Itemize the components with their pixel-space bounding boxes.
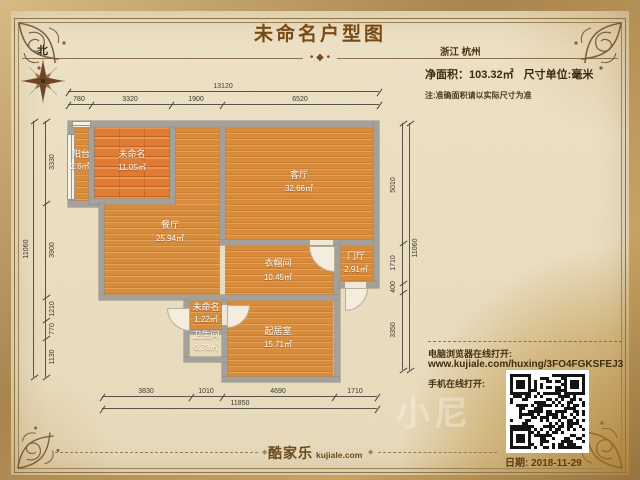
room-label: 卫生间: [192, 331, 219, 340]
wall-segment: [184, 357, 227, 362]
compass-rose-icon: [20, 58, 66, 104]
dimension-label: 3830: [129, 388, 163, 395]
dimension-label: 1130: [49, 340, 57, 374]
region-label: 浙江 杭州: [440, 44, 481, 58]
room-area: 11.05㎡: [118, 164, 145, 172]
dimension-label: 13120: [206, 83, 240, 90]
door-opening: [310, 240, 333, 245]
unit-label: 尺寸单位:毫米: [524, 69, 594, 81]
dimension-label: 5010: [390, 168, 398, 202]
title-ornament-icon: • ◆ •: [303, 52, 337, 63]
room-label: 餐厅: [161, 221, 179, 230]
dimension-label: 3900: [49, 233, 57, 267]
share-url: www.kujiale.com/huxing/3FO4FGKSFEJ3: [428, 359, 623, 370]
brand-watermark: 小尼: [396, 386, 472, 435]
room-dining: [104, 204, 220, 295]
date-label: 日期: 2018-11-29: [505, 454, 582, 469]
room-area: 15.71㎡: [264, 341, 292, 349]
room-area: 10.45㎡: [264, 274, 292, 282]
room-dining-upper: [175, 127, 220, 204]
room-area: 0.78㎡: [194, 344, 218, 352]
dimension-label: 1900: [179, 96, 213, 103]
brand-logo: 酷家乐kujiale.com: [268, 443, 362, 463]
room-area: 1.22㎡: [194, 316, 218, 324]
window: [72, 121, 91, 128]
dimension-line: [402, 123, 403, 370]
wall-segment: [374, 121, 379, 288]
brand-name-cn: 酷家乐: [268, 445, 313, 461]
dimension-line: [68, 104, 379, 105]
wall-segment: [220, 240, 379, 245]
dimension-label: 3320: [113, 96, 147, 103]
dimension-line: [68, 91, 379, 92]
dimension-label: 1010: [189, 388, 223, 395]
room-area: 32.66㎡: [285, 185, 313, 193]
footer-dash-line: [55, 452, 258, 453]
dimension-label: 1710: [338, 388, 372, 395]
dimension-label: 11060: [23, 232, 31, 266]
area-note: 注:准确面积请以实际尺寸为准: [425, 90, 532, 101]
room-label: 未命名: [192, 303, 219, 312]
dimension-label: 400: [390, 270, 398, 304]
dimension-label: 3330: [49, 145, 57, 179]
wall-segment: [170, 127, 175, 204]
footer-dash-line: [378, 452, 497, 453]
dimension-line: [45, 121, 46, 377]
wall-segment: [99, 204, 104, 300]
wall-segment: [89, 127, 94, 204]
diamond-ornament-icon: ◆: [368, 448, 373, 456]
room-label: 衣帽间: [264, 259, 291, 268]
wall-segment: [99, 295, 340, 300]
brand-name-en: kujiale.com: [316, 450, 362, 460]
room-label: 起居室: [264, 327, 291, 336]
wall-segment: [222, 377, 339, 382]
north-label: 北: [37, 42, 48, 58]
room-area: 2.6㎡: [70, 163, 89, 171]
net-area-line: 净面积：103.32㎡尺寸单位:毫米: [425, 66, 593, 82]
diamond-ornament-icon: ◆: [262, 448, 267, 456]
dimension-line: [102, 408, 377, 409]
dimension-line: [33, 121, 34, 377]
dimension-line: [409, 123, 410, 370]
dimension-label: 11060: [412, 231, 420, 265]
floorplan-poster: 未命名户型图 浙江 杭州 • ◆ • 净面积：103.32㎡尺寸单位:毫米 注:…: [0, 0, 640, 480]
dimension-label: 11850: [223, 400, 257, 407]
room-area: 2.91㎡: [344, 266, 368, 274]
share-panel-divider: [428, 341, 622, 342]
wall-segment: [220, 127, 225, 245]
qr-code: [506, 370, 589, 453]
net-area-value: 103.32㎡: [469, 69, 514, 81]
room-label: 阳台: [72, 150, 90, 159]
corner-flourish-icon: [16, 420, 66, 470]
dimension-label: 3350: [390, 313, 398, 347]
dimension-label: 780: [62, 96, 96, 103]
dimension-label: 4690: [261, 388, 295, 395]
dimension-label: 6520: [283, 96, 317, 103]
room-label: 未命名: [118, 150, 145, 159]
page-title: 未命名户型图: [0, 19, 640, 46]
room-area: 25.94㎡: [156, 235, 184, 243]
room-label: 客厅: [290, 171, 308, 180]
dimension-line: [102, 396, 377, 397]
mobile-open-label: 手机在线打开:: [428, 377, 485, 390]
room-label: 门厅: [347, 252, 365, 261]
net-area-label: 净面积：: [425, 69, 469, 81]
